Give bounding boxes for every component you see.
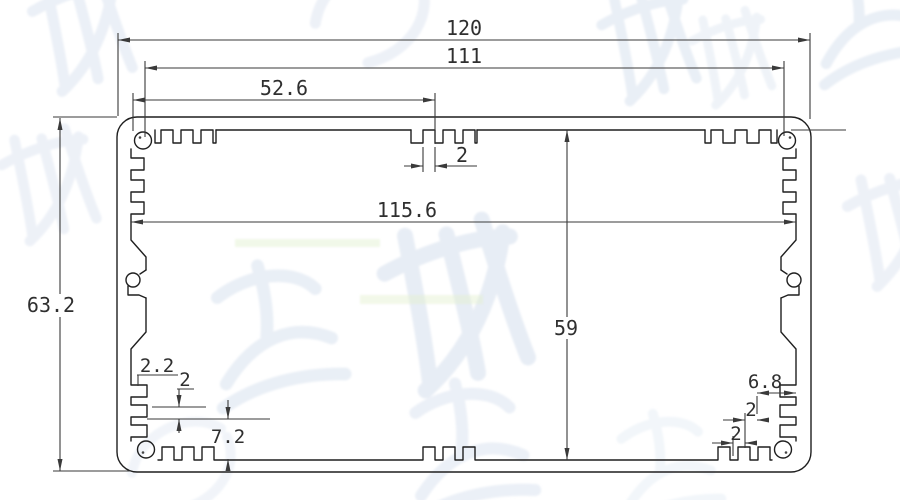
dim-overall-width-label: 120 [446, 16, 482, 40]
left-keyhole-port [126, 270, 146, 298]
drawing-canvas: 120 111 52.6 2 115.6 59 63.2 2.2 2 7.2 6… [0, 0, 900, 500]
dim-br-tooth-label: 2 [745, 399, 756, 421]
dim-overall-height-label: 63.2 [27, 293, 75, 317]
dim-bl-gap-label: 2 [179, 369, 190, 391]
profile-right-wall [780, 149, 801, 441]
dim-top-slot-2-label: 2 [456, 143, 468, 167]
dim-br-gap-label: 2 [730, 423, 741, 445]
dim-inner-height-label: 59 [554, 316, 578, 340]
technical-drawing-page: 120 111 52.6 2 115.6 59 63.2 2.2 2 7.2 6… [0, 0, 900, 500]
left-wall-upper [131, 149, 146, 270]
dim-br-width-label: 6.8 [748, 371, 782, 393]
right-keyhole-port [781, 270, 801, 298]
dim-111-label: 111 [446, 44, 482, 68]
top-middle-comb [411, 130, 477, 143]
top-right-comb [705, 130, 777, 143]
right-wall-lower [780, 298, 796, 441]
top-left-comb [155, 130, 216, 143]
dim-52-6-label: 52.6 [260, 76, 308, 100]
boss-top-right [779, 132, 796, 149]
right-wall-upper [781, 149, 796, 270]
dim-inner-width-label: 115.6 [377, 198, 437, 222]
profile-inner-ceiling [155, 130, 777, 143]
boss-bottom-right [775, 441, 792, 458]
profile-left-wall [126, 149, 147, 441]
dim-bl-tooth-label: 2.2 [140, 355, 174, 377]
dim-bl-height-label: 7.2 [211, 426, 245, 448]
boss-top-left [135, 132, 152, 149]
